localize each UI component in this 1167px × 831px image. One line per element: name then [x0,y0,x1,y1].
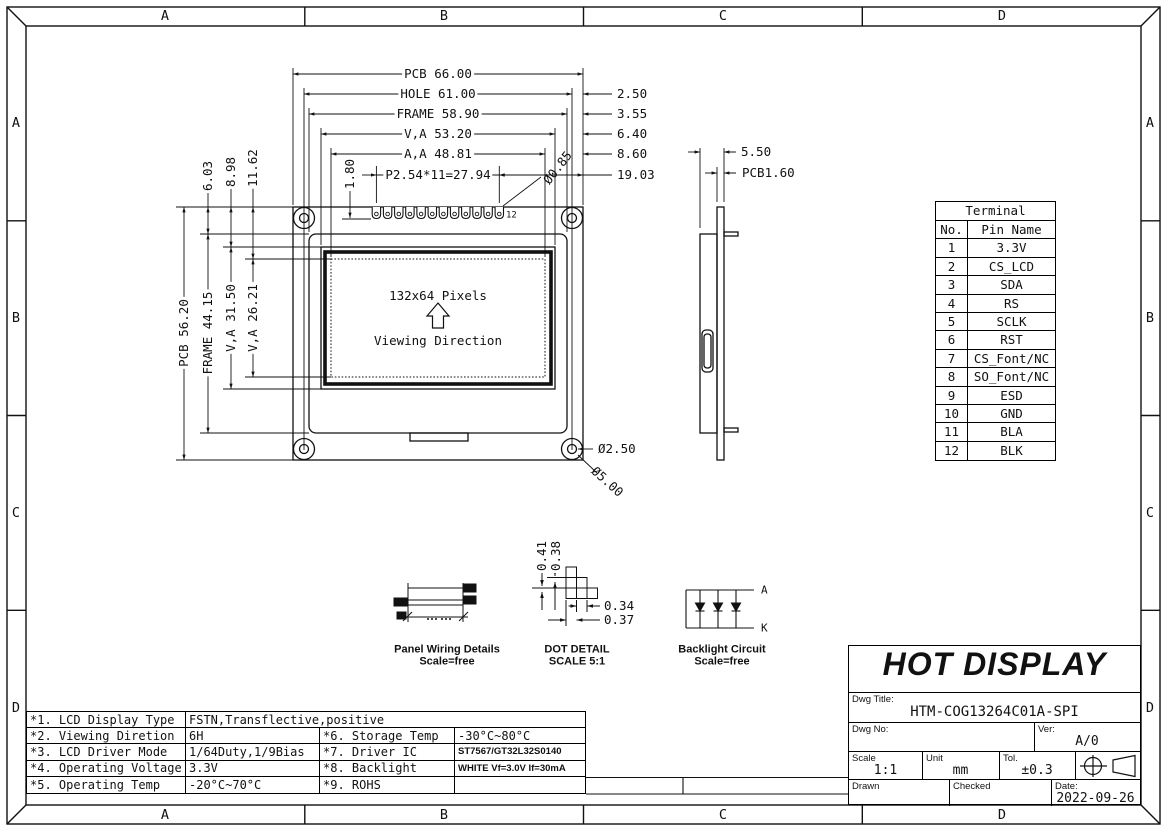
dim-edge-hole: 2.50 [615,88,649,101]
dot-dim-h1: 0.34 [602,600,636,613]
terminal-table: Terminal No. Pin Name 13.3V 2CS_LCD 3SDA… [935,201,1056,461]
spec-label: *6. Storage Temp [320,728,455,744]
dwg-no-label: Dwg No: [852,724,888,735]
terminal-row: 12BLK [936,442,1055,460]
spec-value: ST7567/GT32L32S0140 [455,744,585,760]
checked-label: Checked [953,781,991,792]
zone-bottom-d: D [998,807,1006,823]
dim-frame-width: FRAME 58.90 [395,108,482,121]
dim-pin-pitch: P2.54*11=27.94 [383,169,492,182]
terminal-row: 7CS_Font/NC [936,350,1055,368]
spec-value: WHITE Vf=3.0V If=30mA [455,761,585,777]
drawn-row: Drawn Checked Date: 2022-09-26 [849,780,1140,806]
dim-mount-hole-dia: Ø2.50 [596,443,638,456]
spec-table: *1. LCD Display Type FSTN,Transflective,… [26,711,586,794]
zone-right-b: B [1146,310,1154,326]
dim-pcb-height: PCB 56.20 [178,297,191,369]
company-name: HOT DISPLAY [849,646,1140,692]
third-angle-projection-icon [1077,753,1139,779]
terminal-col-no: No. [936,221,968,238]
terminal-row: 10GND [936,405,1055,423]
terminal-table-title: Terminal [936,202,1055,221]
engineering-drawing-sheet: A B C D A B C D A B C D A B C D PCB 66.0… [0,0,1167,831]
ver-value: A/0 [1034,734,1140,749]
side-view-dimensions [688,148,736,228]
spec-value: 3.3V [186,761,320,777]
zone-top-a: A [161,8,169,24]
dim-frame-height: FRAME 44.15 [202,290,215,377]
dim-pcb-width: PCB 66.00 [402,68,474,81]
terminal-row: 13.3V [936,239,1055,257]
pin-pads [372,207,503,219]
spec-label: *2. Viewing Diretion [27,728,186,744]
backlight-cathode-label: K [759,623,770,634]
spec-label: *1. LCD Display Type [27,712,186,728]
dim-frame-top-offset: 6.03 [202,159,215,193]
dim-hole-width: HOLE 61.00 [398,88,477,101]
spec-value: -30°C~80°C [455,728,585,744]
spec-value: 1/64Duty,1/9Bias [186,744,320,760]
dim-side-total: 5.50 [739,146,773,159]
panel-wiring-detail [394,583,476,622]
zone-left-c: C [12,505,20,521]
dim-pad-length: 1.80 [344,157,357,191]
dim-va-top-offset: 8.98 [225,155,238,189]
terminal-row: 11BLA [936,423,1055,441]
zone-bottom-c: C [719,807,727,823]
zone-left-a: A [12,115,20,131]
dot-dim-v2: 0.38 [550,539,563,573]
dot-detail-scale: SCALE 5:1 [549,657,605,668]
zone-left-b: B [12,310,20,326]
dot-detail [532,567,600,626]
terminal-row: 3SDA [936,276,1055,294]
dim-aa-top-offset: 11.62 [247,147,260,189]
tol-value: ±0.3 [999,763,1075,778]
spec-value: FSTN,Transflective,positive [186,712,585,728]
pin-12-label: 12 [504,212,519,221]
scale-row: Scale 1:1 Unit mm Tol. ±0.3 [849,752,1140,780]
date-value: 2022-09-26 [1051,791,1140,806]
terminal-row: 4RS [936,295,1055,313]
terminal-col-name: Pin Name [968,221,1055,238]
dim-edge-aa: 8.60 [615,148,649,161]
scale-value: 1:1 [849,763,922,778]
dim-aa-width: A,A 48.81 [402,148,474,161]
backlight-scale: Scale=free [694,657,749,668]
front-view-dimensions [176,68,612,473]
spec-label: *8. Backlight [320,761,455,777]
zone-right-c: C [1146,505,1154,521]
dim-edge-va: 6.40 [615,128,649,141]
spec-value [455,777,585,793]
zone-bottom-b: B [440,807,448,823]
terminal-row: 5SCLK [936,313,1055,331]
zone-top-c: C [719,8,727,24]
dot-dim-v1: 0.41 [536,539,549,573]
viewing-direction-arrow [427,303,449,328]
zone-top-b: B [440,8,448,24]
dim-side-pcb: PCB1.60 [740,167,797,180]
spec-label: *7. Driver IC [320,744,455,760]
spec-value: 6H [186,728,320,744]
dim-pin-edge: 19.03 [615,169,657,182]
spec-extension-strip [586,778,848,795]
panel-wiring-scale: Scale=free [419,657,474,668]
spec-label: *9. ROHS [320,777,455,793]
terminal-row: 6RST [936,331,1055,349]
dim-va-width: V,A 53.20 [402,128,474,141]
dwg-title-value: HTM-COG13264C01A-SPI [849,704,1140,720]
panel-wiring-caption: Panel Wiring Details [394,645,500,656]
dim-va-height: V,A 31.50 [225,282,238,354]
terminal-row: 2CS_LCD [936,258,1055,276]
zone-top-d: D [998,8,1006,24]
company-row: HOT DISPLAY [849,646,1140,693]
screen-resolution-label: 132x64 Pixels [387,290,489,303]
title-block: HOT DISPLAY Dwg Title: HTM-COG13264C01A-… [848,645,1141,805]
drawn-label: Drawn [852,781,879,792]
backlight-circuit [686,590,754,628]
zone-right-d: D [1146,700,1154,716]
side-view [700,207,738,460]
zone-bottom-a: A [161,807,169,823]
dwg-title-row: Dwg Title: HTM-COG13264C01A-SPI [849,693,1140,723]
spec-label: *3. LCD Driver Mode [27,744,186,760]
spec-value: -20°C~70°C [186,777,320,793]
dot-dim-h2: 0.37 [602,614,636,627]
dwg-no-row: Dwg No: Ver: A/0 [849,723,1140,752]
terminal-row: 9ESD [936,387,1055,405]
zone-right-a: A [1146,115,1154,131]
dot-detail-caption: DOT DETAIL [544,645,609,656]
terminal-header-row: No. Pin Name [936,221,1055,239]
backlight-anode-label: A [759,585,770,596]
spec-label: *5. Operating Temp [27,777,186,793]
viewing-direction-label: Viewing Direction [372,335,504,348]
terminal-row: 8SO_Font/NC [936,368,1055,386]
spec-label: *4. Operating Voltage [27,761,186,777]
backlight-caption: Backlight Circuit [678,645,765,656]
unit-value: mm [922,763,999,778]
zone-left-d: D [12,700,20,716]
dim-aa-height: V,A 26.21 [247,282,260,354]
dim-edge-frame: 3.55 [615,108,649,121]
